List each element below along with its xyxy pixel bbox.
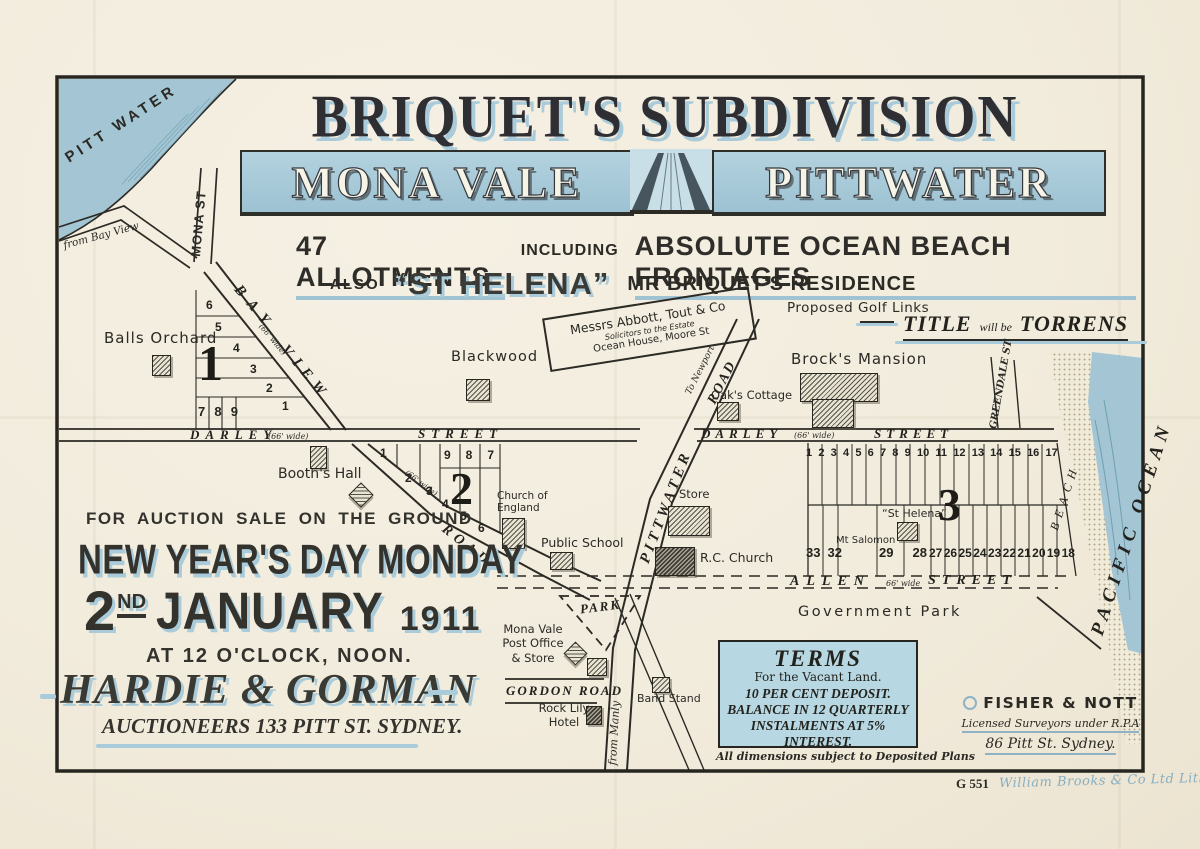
auction-day-suffix: ND [117,591,146,618]
banner-vignette [630,149,712,214]
po-line1: Mona Vale [503,622,562,636]
lot-number: 1 [282,399,289,413]
surveyor-line2: Licensed Surveyors under R.P.A [962,717,1140,733]
church-line2: England [497,502,540,514]
surveyor-block: FISHER & NOTT Licensed Surveyors under R… [948,694,1153,755]
auction-time: AT 12 O'CLOCK, NOON. [146,645,413,668]
auction-line1: FOR AUCTION SALE ON THE GROUND [86,509,473,529]
terms-line3: INSTALMENTS AT 5% INTEREST. [720,718,916,750]
allen-street-label: STREET [928,573,1017,588]
rock-lily-line1: Rock Lily [539,701,590,715]
auction-line2: NEW YEAR'S DAY MONDAY [78,536,524,584]
surveyor-name: FISHER & NOTT [983,694,1137,712]
brocks-mansion-building [800,373,878,402]
section-2-number: 2 [450,462,473,515]
lot-number: 17 [1046,447,1058,459]
lot-number: 9 [231,404,238,419]
terms-sub: For the Vacant Land. [720,670,916,684]
church-of-england-label: Church of England [497,491,548,514]
section3-bottom-lots-a: 3332 [806,545,842,560]
terms-line2: BALANCE IN 12 QUARTERLY [720,702,916,718]
lot-number: 7 [198,404,205,419]
lot-number: 10 [917,447,929,459]
lot-number: 28 [913,545,927,560]
lot-number: 2 [266,381,273,395]
lot-number: 20 [1032,546,1045,560]
store-building [668,506,710,536]
section1-lot-row: 789 [198,404,238,419]
avenue-vignette-graphic [630,149,712,214]
lot-number: 6 [206,298,213,312]
balls-orchard-building [152,355,171,376]
lot-number: 2 [405,471,412,485]
rc-church-label: R.C. Church [700,551,773,565]
post-office-store-building [587,658,607,676]
darley-west-width: (66' wide) [268,432,308,441]
oaks-cottage-label: Oak's Cottage [711,389,792,402]
public-school-label: Public School [541,536,623,550]
rc-church-building [655,547,695,576]
banner-mona-vale: MONA VALE [240,150,634,216]
lot-number: 4 [233,341,240,355]
subdivision-poster: BRIQUET'S SUBDIVISION MONA VALE PITTWATE… [0,0,1200,849]
plate-number: G 551 [956,776,989,792]
band-stand-building [652,677,670,693]
store-label: Store [679,488,709,501]
auction-year: 1911 [400,600,482,639]
section-1-number: 1 [198,334,223,392]
lot-number: 4 [843,447,849,459]
also-label: ALSO [330,276,380,293]
lot-number: 12 [953,447,965,459]
lot-number: 33 [806,545,820,560]
auction-date-line: 2 ND JANUARY 1911 [84,578,481,643]
lot-number: 26 [944,546,957,560]
street-west-label: STREET [418,427,503,441]
section3-bottom-lots-b: 2928 [879,545,927,560]
rock-lily-building [586,706,602,725]
lot-number: 23 [988,546,1001,560]
torrens-line: TITLE will be TORRENS [903,311,1128,341]
lot-number: 3 [250,362,257,376]
booths-hall-label: Booth's Hall [278,467,362,482]
darley-west-label: DARLEY [190,428,277,442]
band-stand-label: Band Stand [637,693,701,705]
rock-lily-label: Rock Lily Hotel [538,702,590,730]
booths-hall-building [310,446,327,469]
lot-number: 7 [487,448,494,462]
banner-pittwater-label: PITTWATER [765,157,1053,208]
lot-number: 5 [215,320,222,334]
st-helena-title: “ST HELENA” [392,266,610,302]
lot-number: 8 [466,448,473,462]
auctioneer-address: AUCTIONEERS 133 PITT ST. SYDNEY. [102,714,463,739]
rock-lily-line2: Hotel [549,715,579,729]
govt-park-label: Government Park [798,605,962,621]
allen-label: ALLEN [790,574,871,589]
lot-number: 21 [1017,546,1030,560]
lot-number: 25 [958,546,971,560]
auctioneer-underline [96,744,418,748]
church-line1: Church of [497,490,548,502]
surveyor-line3: 86 Pitt St. Sydney. [985,736,1115,755]
lot-number: 27 [929,546,942,560]
lot-number: 24 [973,546,986,560]
lot-number: 2 [818,447,824,459]
section3-bottom-lots-c: 27262524232221201918 [929,546,1075,560]
lot-number: 19 [1047,546,1060,560]
darley-east-width: (66' wide) [794,431,834,440]
post-office-label: Mona Vale Post Office & Store [498,622,568,665]
st-helena-line: ALSO “ST HELENA” MR BRIQUET'S RESIDENCE [330,266,930,302]
lot-number: 9 [905,447,911,459]
lot-number: 8 [892,447,898,459]
poster-title: BRIQUET'S SUBDIVISION [140,84,1190,151]
lot-number: 13 [972,447,984,459]
terms-line1: 10 PER CENT DEPOSIT. [720,686,916,702]
lot-number: 16 [1027,447,1039,459]
agent-dash-left [40,694,56,699]
torrens-dash-ink [860,321,894,323]
brocks-mansion-wing [812,399,854,428]
including-label: INCLUDING [521,242,619,260]
dimensions-note: All dimensions subject to Deposited Plan… [716,750,975,763]
lot-number: 8 [214,404,221,419]
lot-number: 9 [444,448,451,462]
torrens-title-word: TITLE [903,311,972,337]
auctioneer-name: HARDIE & GORMAN [60,666,476,714]
oaks-cottage-building [717,402,739,421]
auction-month: JANUARY [156,581,384,641]
lot-number: 3 [831,447,837,459]
lot-number: 18 [1062,546,1075,560]
lot-number: 5 [855,447,861,459]
lot-number: 1 [806,447,812,459]
lot-number: 6 [478,521,485,535]
lot-number: 11 [935,447,947,459]
terms-box: TERMS For the Vacant Land. 10 PER CENT D… [718,640,918,748]
torrens-word: TORRENS [1020,311,1128,337]
lot-number: 3 [426,484,433,498]
lot-number: 14 [990,447,1002,459]
auction-day: 2 [84,578,115,643]
public-school-building [550,552,573,570]
lot-number: 32 [828,545,842,560]
po-line3: & Store [511,651,554,665]
banner-mona-vale-label: MONA VALE [292,157,583,208]
flourish-icon [963,696,977,710]
section2-lot-row: 987 [444,448,494,462]
torrens-underline [895,341,1147,344]
residence-label: MR BRIQUET'S RESIDENCE [627,273,916,296]
lot-number: 29 [879,545,893,560]
allen-width-label: 66' wide [886,579,920,588]
lot-number: 22 [1003,546,1016,560]
lot-number: 15 [1009,447,1021,459]
section3-top-lots: 1234567891011121314151617 [806,447,1058,459]
st-helena-building [897,522,918,541]
po-line2: Post Office [502,636,563,650]
lot-number: 7 [880,447,886,459]
agent-dash-right [428,690,458,695]
brocks-mansion-label: Brock's Mansion [791,351,927,368]
blackwood-building [466,379,490,401]
banner-pittwater: PITTWATER [712,150,1106,216]
torrens-dash-left [856,323,898,326]
blackwood-label: Blackwood [451,350,538,366]
lot-number: 1 [380,446,387,460]
lot-number: 6 [868,447,874,459]
street-east-label: STREET [874,427,953,441]
gordon-road-label: GORDON ROAD [506,684,623,698]
terms-heading: TERMS [720,646,916,672]
torrens-willbe: will be [980,320,1012,335]
section-3-number: 3 [938,478,961,531]
darley-east-label: DARLEY [701,427,782,441]
